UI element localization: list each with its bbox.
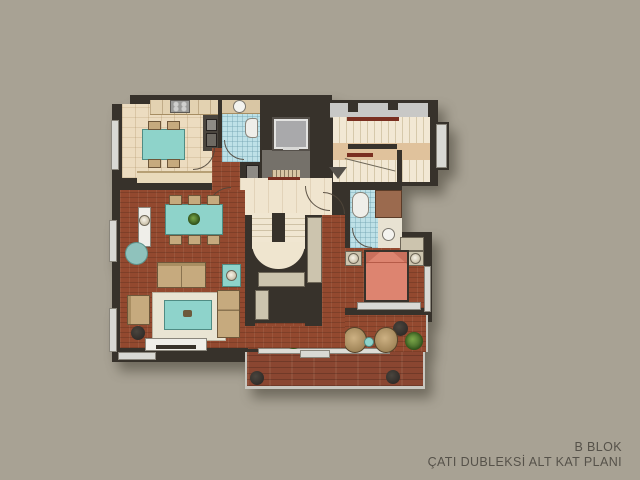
plant-bush-icon xyxy=(405,332,423,350)
hall-bench xyxy=(255,290,269,320)
hall-bench xyxy=(258,272,305,287)
elevator-door xyxy=(283,147,299,150)
hall-cabinet xyxy=(307,217,322,283)
duplex-stair-core xyxy=(272,213,285,245)
chair xyxy=(207,235,220,245)
kitchen-table xyxy=(142,129,185,160)
caption-plan-name: ÇATI DUBLEKSİ ALT KAT PLANI xyxy=(428,455,622,470)
chair xyxy=(167,159,180,168)
terrace-deck xyxy=(245,352,425,389)
floor-plan xyxy=(0,0,640,480)
table-plant-icon xyxy=(188,213,200,225)
facade-mullion xyxy=(388,101,398,110)
hall-wall xyxy=(247,270,255,326)
bedside-lamp-icon xyxy=(410,253,421,264)
chaise-lounge xyxy=(217,290,240,338)
bathtub-icon xyxy=(352,192,369,218)
chair xyxy=(148,121,161,130)
living-room-floor xyxy=(245,326,322,348)
bath-cabinet xyxy=(375,190,402,218)
stairwell-facade xyxy=(330,103,428,118)
planter-pot-icon xyxy=(250,371,264,385)
washbasin-icon xyxy=(382,228,395,241)
wardrobe xyxy=(400,237,424,251)
window xyxy=(300,350,330,358)
chair xyxy=(188,195,201,205)
chair xyxy=(188,235,201,245)
bedside-lamp-icon xyxy=(348,253,359,264)
stair-rail-wall xyxy=(397,150,402,182)
window xyxy=(111,120,119,170)
terrace-chair xyxy=(374,327,398,353)
bed-blanket-line xyxy=(366,262,407,263)
washbasin-icon xyxy=(233,100,246,113)
window xyxy=(436,124,447,168)
hall-wall xyxy=(305,283,313,326)
window xyxy=(118,352,156,360)
entry-door-sill xyxy=(268,177,300,180)
round-side-table xyxy=(125,242,148,265)
radiator xyxy=(138,207,151,247)
elevator xyxy=(274,119,308,149)
table-lamp-icon xyxy=(226,270,237,281)
stair-flight-lower xyxy=(333,160,430,182)
bedroom-corridor-floor xyxy=(322,215,345,348)
floor-lamp-icon xyxy=(139,215,150,226)
stove-icon xyxy=(170,100,190,113)
armchair xyxy=(127,295,150,325)
window xyxy=(357,302,421,310)
stair-handrail xyxy=(347,153,373,157)
terrace-side-table xyxy=(364,337,374,347)
chair xyxy=(207,195,220,205)
chair xyxy=(148,159,161,168)
facade-mullion xyxy=(348,103,358,112)
table-decor-icon xyxy=(183,310,192,317)
kitchen-appliance-icon xyxy=(206,133,217,147)
tv-icon xyxy=(156,345,196,349)
kitchen-bar-counter xyxy=(137,171,215,183)
chair xyxy=(167,121,180,130)
sink-icon xyxy=(206,119,217,131)
sofa xyxy=(157,262,206,288)
stair-handrail xyxy=(347,117,399,121)
side-stool xyxy=(131,326,145,340)
chair xyxy=(169,235,182,245)
caption-block-name: B BLOK xyxy=(428,440,622,455)
floor-plan-screenshot: B BLOK ÇATI DUBLEKSİ ALT KAT PLANI xyxy=(0,0,640,480)
caption: B BLOK ÇATI DUBLEKSİ ALT KAT PLANI xyxy=(428,440,622,470)
window xyxy=(109,220,117,262)
stair-rail-wall xyxy=(348,144,397,149)
window xyxy=(109,308,117,352)
chair xyxy=(169,195,182,205)
toilet-icon xyxy=(245,118,258,138)
planter-pot-icon xyxy=(386,370,400,384)
washer-icon xyxy=(246,165,259,179)
window xyxy=(424,266,431,312)
